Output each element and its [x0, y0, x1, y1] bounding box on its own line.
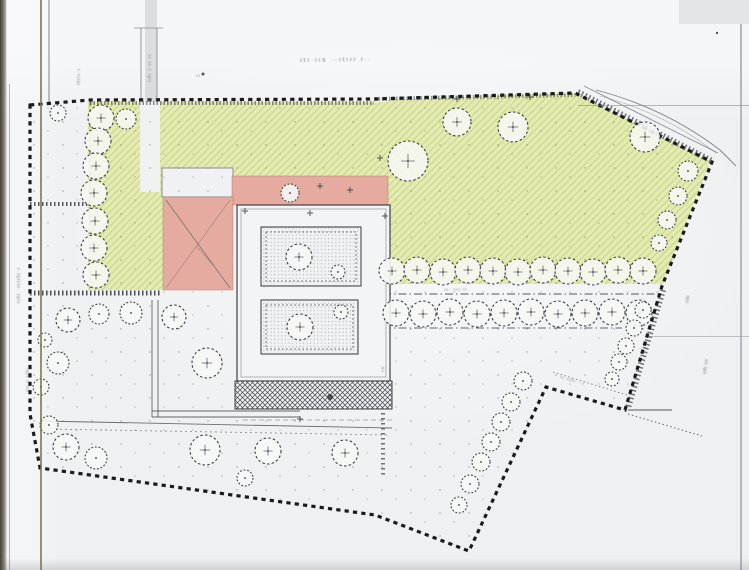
tree-symbol — [492, 413, 510, 431]
corner-note: ı·ı — [196, 73, 200, 78]
tree-symbol — [530, 257, 556, 283]
tree-symbol — [464, 301, 490, 327]
tree-symbol — [286, 244, 312, 270]
scanned-site-plan-page: ıtı·ııs ··ıtııı ı··ııtı ·ııııtı·ıııı·ı ı… — [0, 0, 749, 570]
road-label-left: ıtııı·ı — [76, 68, 82, 85]
tree-symbol — [605, 372, 619, 386]
tree-symbol — [50, 105, 66, 121]
tree-symbol — [332, 440, 358, 466]
tree-symbol — [388, 141, 428, 181]
tree-symbol — [120, 302, 142, 324]
tree-symbol — [53, 434, 79, 460]
street-label-left-upper: ııtı ·ııııtı·ı — [16, 267, 22, 303]
tree-symbol — [651, 235, 667, 251]
ink-blot — [202, 73, 205, 76]
road-label-top: ıtı·ııs ··ıtııı ı·· — [300, 57, 373, 64]
tree-symbol — [437, 299, 463, 325]
tree-symbol — [505, 259, 531, 285]
tree-symbol — [658, 211, 676, 229]
tree-symbol — [430, 259, 456, 285]
alignment-note: ·ıı··ııı·ıı — [442, 287, 468, 292]
dim-note-right: ı·ıı — [380, 367, 385, 372]
tree-symbol — [85, 447, 107, 469]
tree-symbol — [379, 258, 405, 284]
tree-symbol — [81, 180, 107, 206]
tree-symbol — [498, 112, 528, 142]
tree-symbol — [455, 257, 481, 283]
plan-line — [628, 414, 702, 436]
tree-symbol — [383, 300, 409, 326]
tree-symbol — [555, 258, 581, 284]
tree-symbol — [611, 354, 627, 370]
tree-symbol — [404, 257, 430, 283]
tree-symbol — [472, 453, 490, 471]
road-label-mid: ııłı ı·ıı ıı — [147, 53, 153, 82]
tree-symbol — [162, 305, 186, 329]
tree-symbol — [630, 258, 656, 284]
tree-symbol — [572, 300, 598, 326]
street-label-right-lower: ııtı ııı — [702, 358, 710, 374]
tree-symbol — [480, 258, 506, 284]
tree-symbol — [599, 299, 625, 325]
tree-symbol — [237, 470, 253, 486]
tree-symbol — [190, 435, 220, 465]
site-plan-svg: ıtı·ııs ··ıtııı ı··ııtı ·ııııtı·ıııı·ı ı… — [0, 0, 749, 570]
tree-symbol — [518, 299, 544, 325]
tree-symbol — [545, 301, 571, 327]
ink-blot — [327, 394, 333, 400]
tree-symbol — [85, 128, 111, 154]
tree-symbol — [669, 187, 687, 205]
tree-symbol — [40, 416, 58, 434]
tree-symbol — [287, 314, 313, 340]
tree-symbol — [626, 320, 642, 336]
tree-symbol — [83, 262, 109, 288]
tree-symbol — [255, 438, 281, 464]
tree-symbol — [618, 338, 634, 354]
ink-blot — [716, 32, 718, 34]
tree-symbol — [443, 108, 471, 136]
tree-symbol — [410, 301, 436, 327]
tree-symbol — [56, 308, 80, 332]
tree-symbol — [580, 259, 606, 285]
tree-symbol — [461, 475, 479, 493]
tree-symbol — [331, 265, 345, 279]
site-plan-drawing: ıtı·ııs ··ıtııı ı··ııtı ·ııııtı·ıııı·ı ı… — [0, 0, 749, 570]
street-label-left-lower: ııı·ı ııtı — [25, 368, 31, 392]
tree-symbol — [451, 497, 467, 513]
building-roof-pink — [232, 176, 388, 205]
tree-symbol — [482, 433, 500, 451]
tree-symbol — [678, 161, 698, 181]
tree-symbol — [491, 300, 517, 326]
tree-symbol — [502, 393, 520, 411]
tree-symbol — [47, 352, 69, 374]
street-label-right-upper: ·ııtı — [684, 295, 692, 306]
tree-symbol — [281, 184, 299, 202]
tree-symbol — [630, 122, 660, 152]
tree-symbol — [83, 153, 109, 179]
tree-symbol — [635, 302, 651, 318]
tree-symbol — [605, 257, 631, 283]
tree-symbol — [81, 235, 107, 261]
tree-symbol — [334, 305, 348, 319]
tree-symbol — [33, 379, 49, 395]
tree-symbol — [82, 208, 108, 234]
tree-symbol — [38, 333, 52, 347]
tree-symbol — [88, 105, 114, 131]
tree-symbol — [514, 372, 532, 390]
tree-symbol — [192, 348, 222, 378]
tree-symbol — [116, 109, 136, 129]
tree-symbol — [89, 304, 109, 324]
